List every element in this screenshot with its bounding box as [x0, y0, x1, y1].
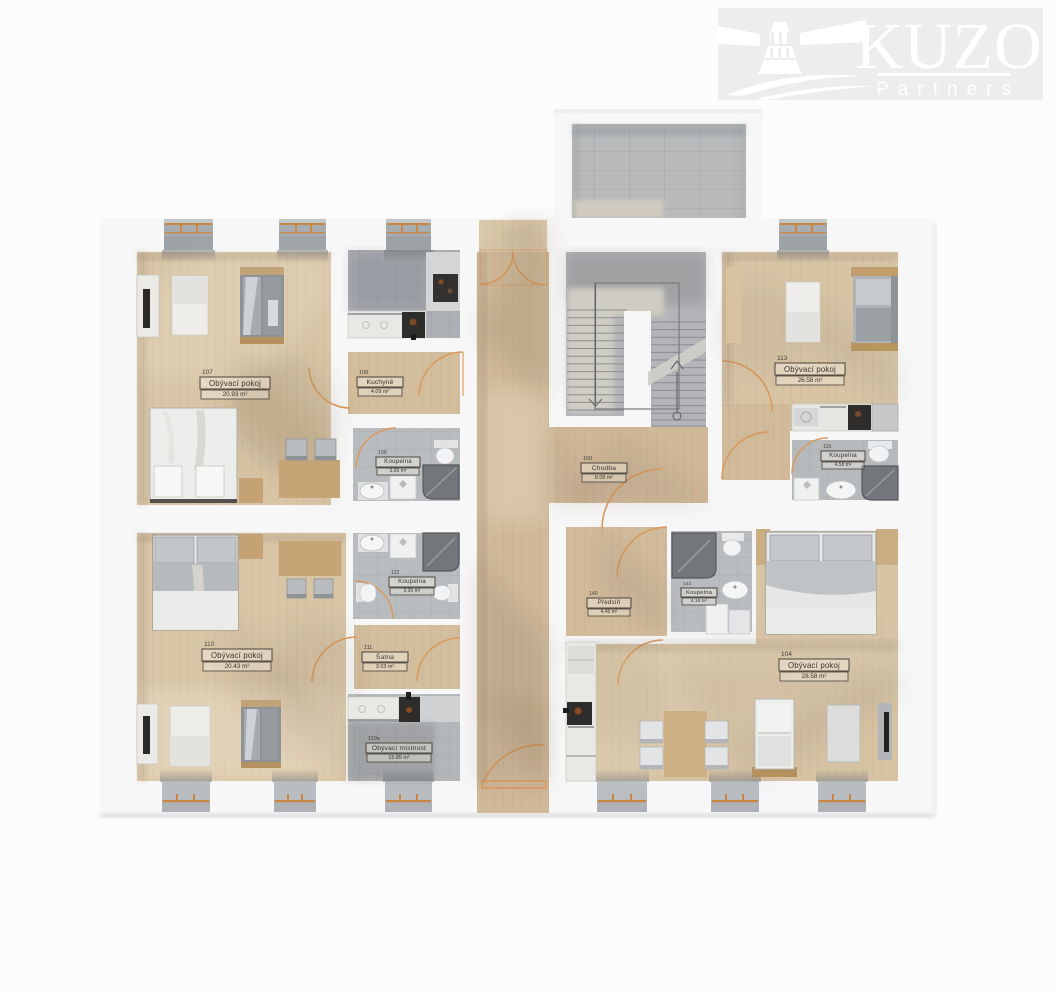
svg-text:107: 107	[202, 369, 213, 376]
svg-text:Koupelna: Koupelna	[398, 578, 426, 585]
svg-text:Obývací pokoj: Obývací pokoj	[788, 661, 840, 670]
svg-text:Předsíň: Předsíň	[598, 599, 621, 606]
svg-text:Obývací pokoj: Obývací pokoj	[784, 365, 836, 374]
svg-text:112: 112	[391, 570, 399, 576]
svg-text:4.18 m²: 4.18 m²	[691, 598, 707, 603]
svg-text:Obývací pokoj: Obývací pokoj	[211, 651, 263, 660]
svg-text:108: 108	[359, 370, 368, 376]
svg-text:3.03 m²: 3.03 m²	[376, 664, 394, 670]
svg-text:Obývací místnost: Obývací místnost	[372, 745, 426, 752]
svg-text:113: 113	[777, 355, 788, 362]
svg-text:110a: 110a	[368, 736, 381, 742]
svg-text:4.58 m²: 4.58 m²	[835, 462, 852, 468]
svg-text:Koupelna: Koupelna	[686, 590, 713, 596]
svg-text:141: 141	[683, 581, 691, 587]
svg-text:115: 115	[823, 444, 831, 450]
svg-text:Koupelna: Koupelna	[384, 458, 412, 465]
svg-text:20.43 m²: 20.43 m²	[225, 663, 250, 670]
svg-text:109: 109	[378, 450, 387, 456]
svg-text:Šatna: Šatna	[376, 652, 394, 661]
svg-text:15.85 m²: 15.85 m²	[388, 755, 409, 761]
svg-text:140: 140	[589, 591, 598, 597]
svg-text:4.09 m²: 4.09 m²	[371, 389, 389, 395]
svg-text:104: 104	[781, 651, 792, 658]
svg-text:Kuchyně: Kuchyně	[366, 379, 393, 386]
svg-text:3.95 m²: 3.95 m²	[404, 588, 421, 594]
svg-text:150: 150	[583, 456, 592, 462]
svg-text:28.58 m²: 28.58 m²	[802, 673, 827, 680]
svg-text:Chodba: Chodba	[592, 465, 616, 472]
svg-text:Obývací pokoj: Obývací pokoj	[209, 379, 261, 388]
svg-text:110: 110	[204, 641, 215, 648]
svg-text:Partners: Partners	[876, 79, 1020, 100]
svg-text:3.95 m²: 3.95 m²	[390, 468, 407, 474]
svg-text:26.58 m²: 26.58 m²	[798, 377, 823, 384]
svg-text:4.46 m²: 4.46 m²	[601, 609, 618, 615]
svg-text:KUZO: KUZO	[855, 10, 1042, 83]
svg-text:8.09 m²: 8.09 m²	[595, 475, 613, 481]
svg-text:20.93 m²: 20.93 m²	[223, 391, 248, 398]
svg-text:111: 111	[364, 645, 372, 651]
svg-text:Koupelna: Koupelna	[829, 452, 857, 459]
